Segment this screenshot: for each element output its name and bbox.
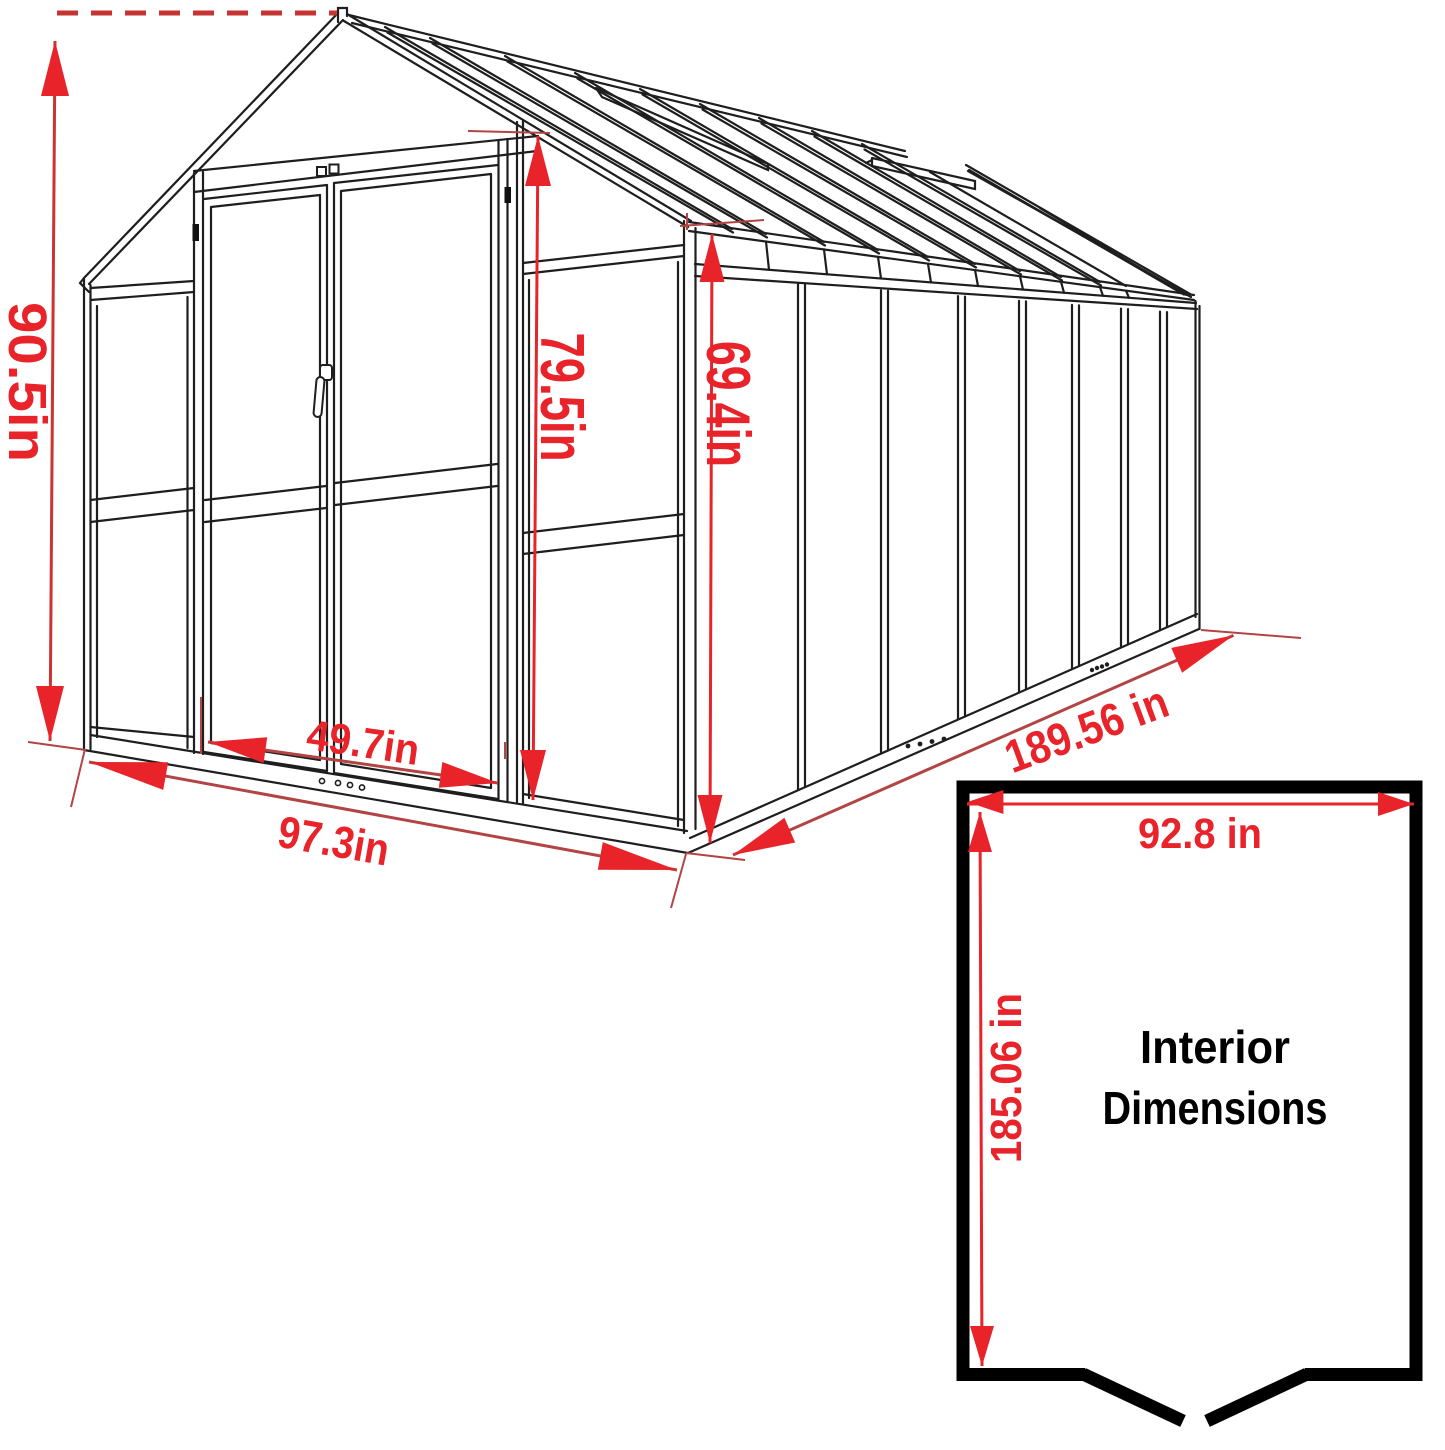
- svg-text:Dimensions: Dimensions: [1103, 1082, 1328, 1134]
- svg-text:92.8 in: 92.8 in: [1138, 810, 1262, 858]
- svg-text:69.4in: 69.4in: [693, 341, 762, 467]
- svg-text:79.5in: 79.5in: [527, 333, 596, 462]
- svg-text:90.5in: 90.5in: [0, 302, 57, 462]
- svg-text:185.06 in: 185.06 in: [982, 993, 1031, 1163]
- svg-text:Interior: Interior: [1140, 1021, 1290, 1073]
